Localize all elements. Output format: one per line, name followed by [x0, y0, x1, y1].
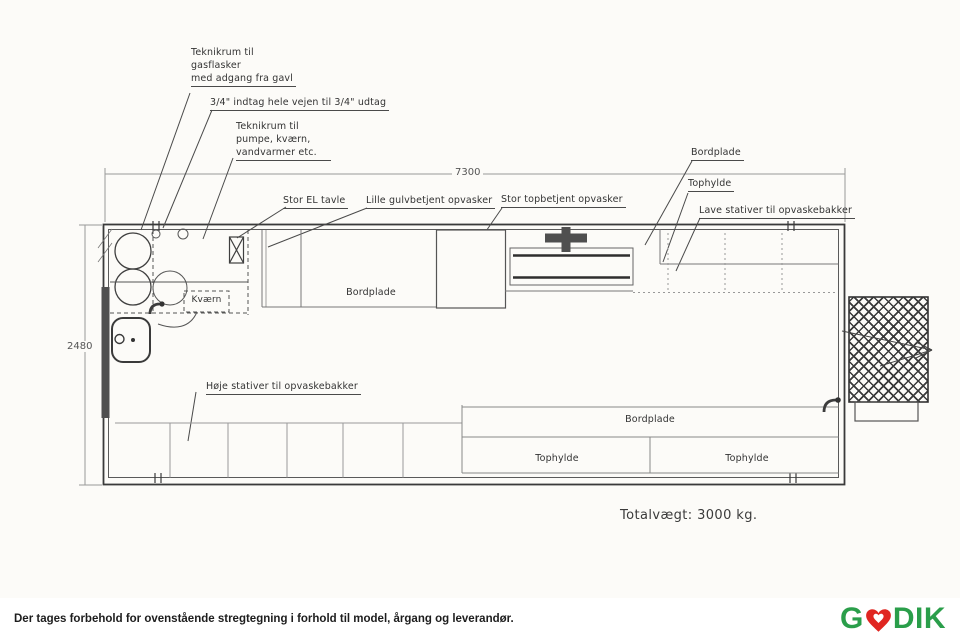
gable-door	[102, 287, 110, 418]
entry-step	[855, 402, 918, 421]
entry-platform	[842, 297, 932, 421]
technical-room	[110, 229, 248, 327]
width-dimension: 2480	[64, 341, 95, 352]
callout-large-dishwasher: Stor topbetjent opvasker	[501, 193, 626, 208]
large-dishwasher-unit	[437, 230, 506, 308]
callout-gas-room: Teknikrum til gasflasker med adgang fra …	[191, 46, 296, 87]
callout-inlet: 3/4" indtag hele vejen til 3/4" udtag	[210, 96, 389, 111]
counter-mid-label: Bordplade	[321, 286, 421, 299]
callout-high-racks: Høje stativer til opvaskebakker	[206, 380, 361, 395]
pump-unit	[153, 271, 187, 305]
high-racks-area	[115, 423, 462, 478]
heart-icon	[865, 608, 892, 633]
callout-el-panel: Stor EL tavle	[283, 194, 348, 209]
callout-counter-top-right: Bordplade	[691, 146, 744, 161]
callout-small-dishwasher: Lille gulvbetjent opvasker	[366, 194, 495, 209]
godik-logo: G DIK	[840, 602, 946, 636]
top-shelf-bottom-right-label: Tophylde	[697, 452, 797, 465]
door-swing-arrow	[842, 331, 932, 366]
gas-bottle-1	[115, 233, 151, 269]
total-weight-label: Totalvægt: 3000 kg.	[620, 508, 757, 523]
el-panel-box	[230, 237, 244, 263]
floor-plan-lines	[0, 0, 960, 598]
grinder-label: Kværn	[184, 294, 229, 307]
floor-plan-page: Teknikrum til gasflasker med adgang fra …	[0, 0, 960, 640]
hood-dishwasher-unit	[505, 227, 633, 291]
counter-bottom-label: Bordplade	[590, 413, 710, 426]
top-shelf-bottom-left-label: Tophylde	[507, 452, 607, 465]
disclaimer-text: Der tages forbehold for ovenstående stre…	[14, 613, 514, 625]
length-dimension: 7300	[452, 167, 483, 178]
callout-low-racks: Lave stativer til opvaskebakker	[699, 204, 855, 219]
drain-pipe	[158, 312, 197, 327]
logo-text-g: G	[840, 602, 864, 636]
callout-pump-room: Teknikrum til pumpe, kværn, vandvarmer e…	[236, 120, 331, 161]
gas-bottle-2	[115, 269, 151, 305]
callout-top-shelf-right: Tophylde	[688, 177, 734, 192]
hand-wash-sink	[112, 318, 150, 362]
footer-bar: Der tages forbehold for ovenstående stre…	[0, 598, 960, 640]
logo-text-dik: DIK	[893, 602, 946, 636]
